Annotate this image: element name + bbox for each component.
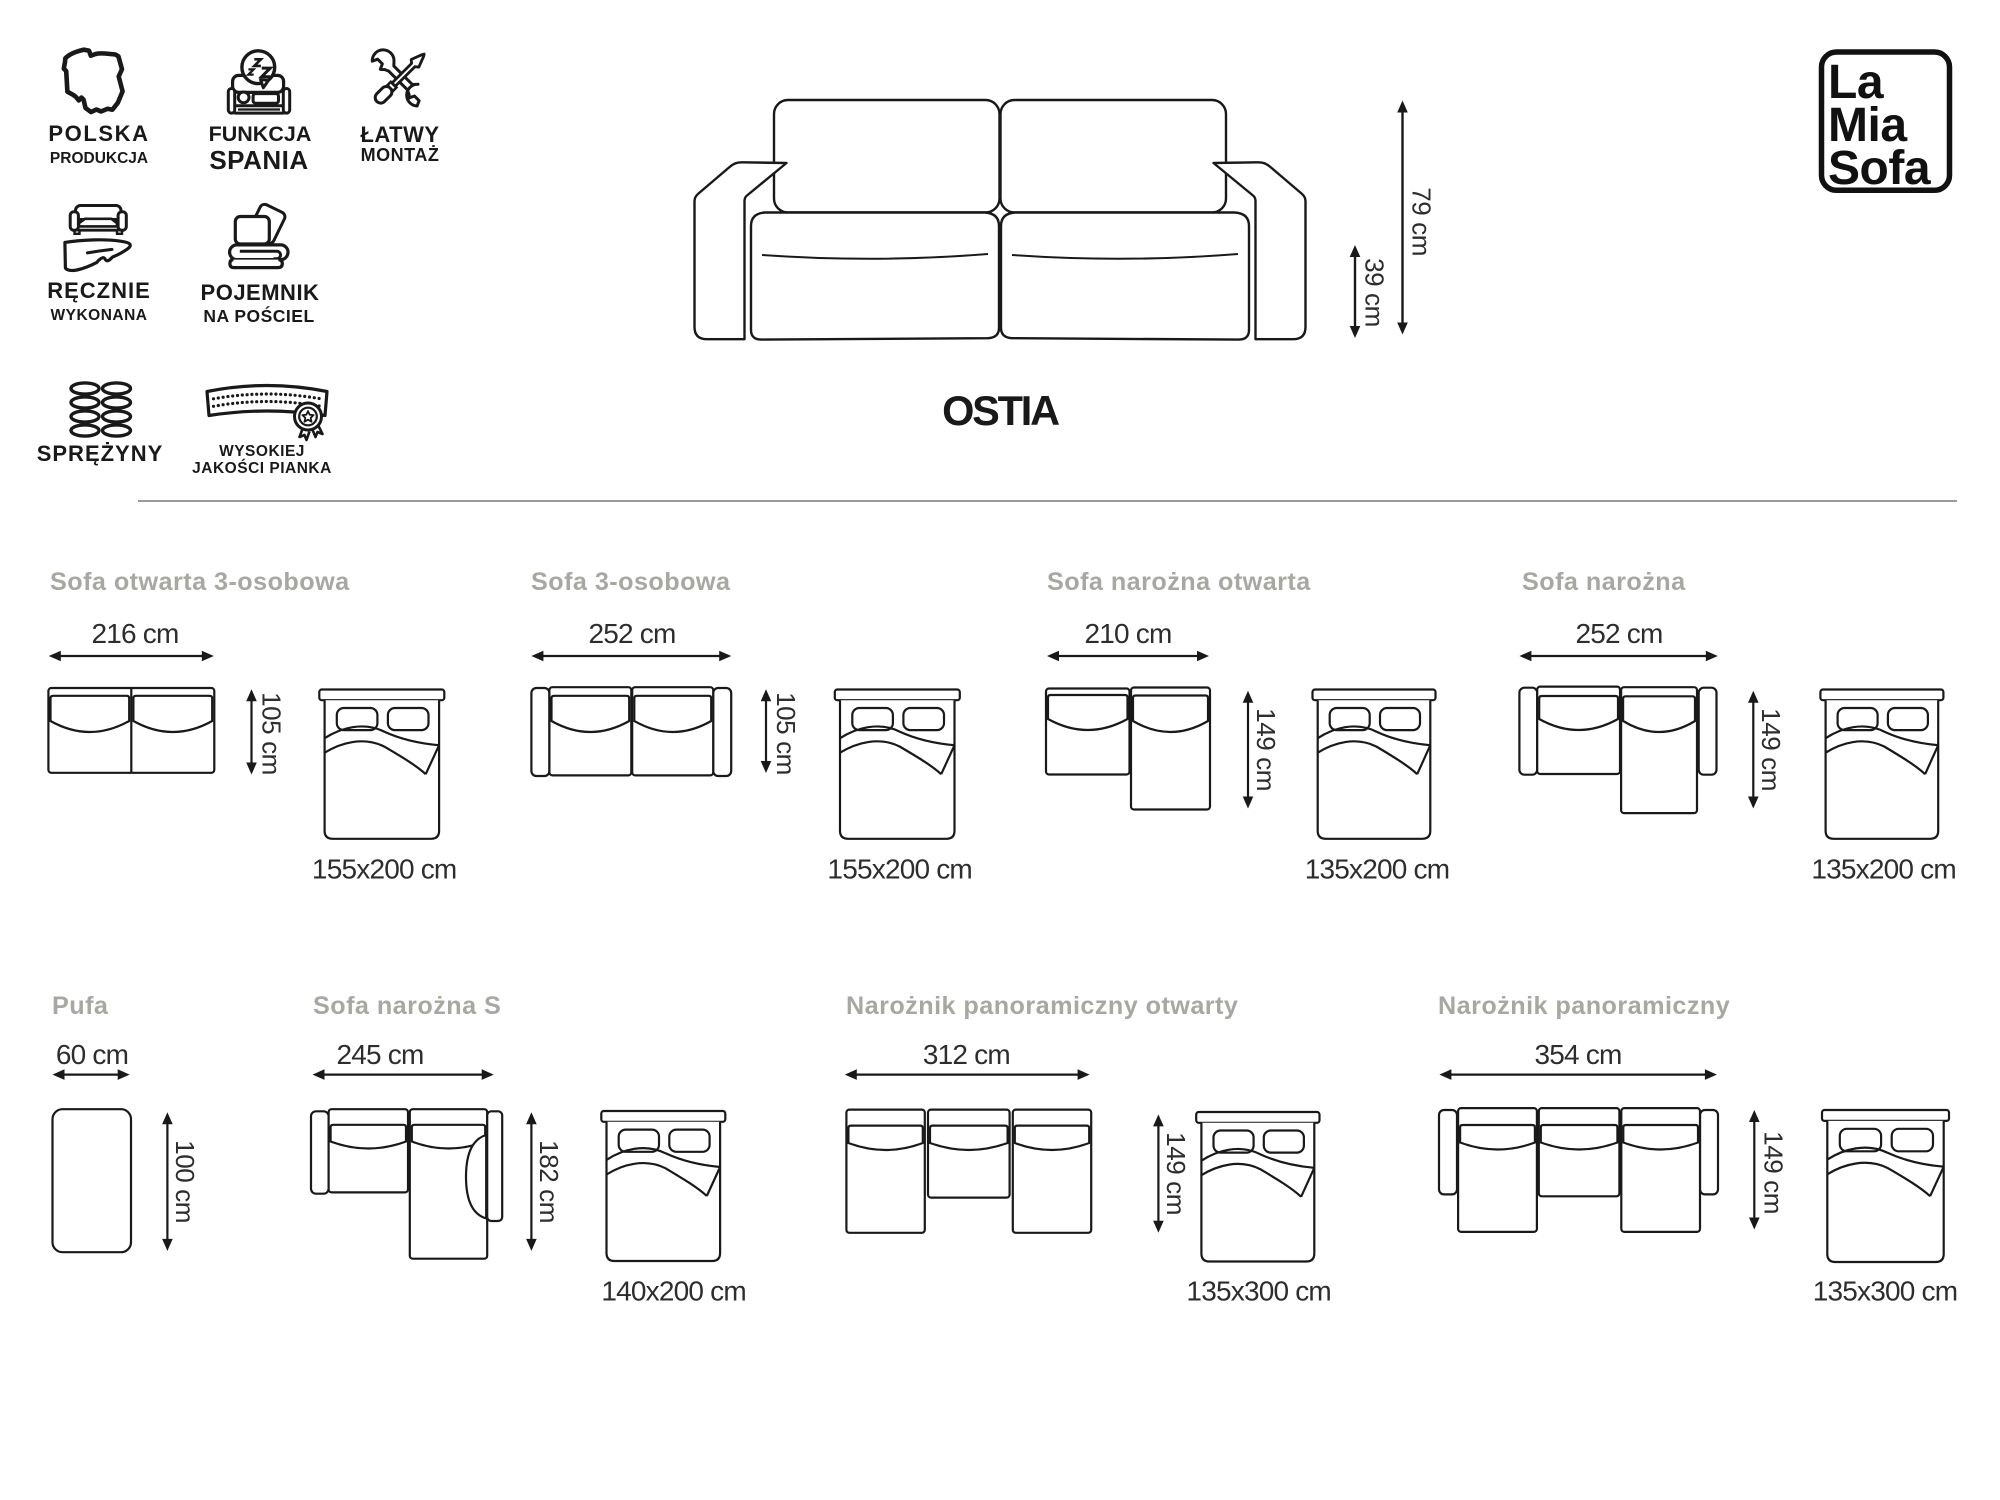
svg-text:WYSOKIEJ: WYSOKIEJ	[219, 443, 305, 460]
svg-text:FUNKCJA: FUNKCJA	[209, 122, 312, 146]
svg-text:ŁATWY: ŁATWY	[360, 122, 439, 147]
svg-text:RĘCZNIE: RĘCZNIE	[47, 278, 151, 303]
svg-text:MONTAŻ: MONTAŻ	[361, 145, 440, 165]
svg-text:POLSKA: POLSKA	[48, 121, 149, 146]
svg-text:Sofa narożna otwarta: Sofa narożna otwarta	[1047, 568, 1311, 596]
svg-text:Sofa narożna S: Sofa narożna S	[313, 992, 501, 1020]
svg-text:149 cm: 149 cm	[1161, 1132, 1191, 1215]
svg-text:60 cm: 60 cm	[56, 1039, 128, 1070]
svg-text:210 cm: 210 cm	[1084, 618, 1171, 649]
svg-text:252 cm: 252 cm	[1575, 618, 1662, 649]
svg-text:155x200 cm: 155x200 cm	[827, 853, 972, 884]
svg-text:OSTIA: OSTIA	[942, 387, 1059, 434]
svg-text:NA POŚCIEL: NA POŚCIEL	[203, 305, 314, 326]
svg-text:100 cm: 100 cm	[170, 1140, 200, 1223]
svg-text:149 cm: 149 cm	[1756, 708, 1786, 791]
svg-text:245 cm: 245 cm	[336, 1039, 423, 1070]
svg-text:Narożnik panoramiczny: Narożnik panoramiczny	[1438, 992, 1730, 1020]
svg-text:Sofa otwarta 3-osobowa: Sofa otwarta 3-osobowa	[50, 568, 350, 596]
svg-text:JAKOŚCI PIANKA: JAKOŚCI PIANKA	[192, 459, 332, 477]
svg-text:354 cm: 354 cm	[1534, 1039, 1621, 1070]
svg-text:135x300 cm: 135x300 cm	[1813, 1275, 1958, 1306]
svg-text:149 cm: 149 cm	[1251, 708, 1281, 791]
svg-text:312 cm: 312 cm	[923, 1039, 1010, 1070]
svg-text:SPRĘŻYNY: SPRĘŻYNY	[37, 441, 164, 466]
svg-text:Pufa: Pufa	[52, 992, 109, 1020]
svg-text:155x200 cm: 155x200 cm	[312, 853, 457, 884]
svg-text:135x200 cm: 135x200 cm	[1811, 853, 1956, 884]
svg-text:105 cm: 105 cm	[256, 692, 286, 775]
svg-text:39 cm: 39 cm	[1360, 258, 1390, 327]
svg-text:182 cm: 182 cm	[534, 1140, 564, 1223]
svg-text:135x200 cm: 135x200 cm	[1305, 853, 1450, 884]
svg-text:252 cm: 252 cm	[588, 618, 675, 649]
svg-text:Sofa 3-osobowa: Sofa 3-osobowa	[531, 568, 731, 596]
svg-text:135x300 cm: 135x300 cm	[1186, 1275, 1331, 1306]
svg-text:149 cm: 149 cm	[1759, 1131, 1789, 1214]
svg-text:105 cm: 105 cm	[771, 692, 801, 775]
svg-text:Sofa: Sofa	[1828, 142, 1931, 195]
svg-text:216 cm: 216 cm	[91, 618, 178, 649]
svg-text:PRODUKCJA: PRODUKCJA	[50, 150, 148, 167]
svg-text:Sofa narożna: Sofa narożna	[1522, 568, 1686, 596]
svg-text:Narożnik panoramiczny otwarty: Narożnik panoramiczny otwarty	[846, 992, 1238, 1020]
svg-text:POJEMNIK: POJEMNIK	[201, 280, 320, 305]
svg-text:140x200 cm: 140x200 cm	[601, 1275, 746, 1306]
svg-text:WYKONANA: WYKONANA	[51, 307, 148, 324]
svg-text:79 cm: 79 cm	[1406, 187, 1436, 256]
svg-text:SPANIA: SPANIA	[209, 145, 308, 175]
